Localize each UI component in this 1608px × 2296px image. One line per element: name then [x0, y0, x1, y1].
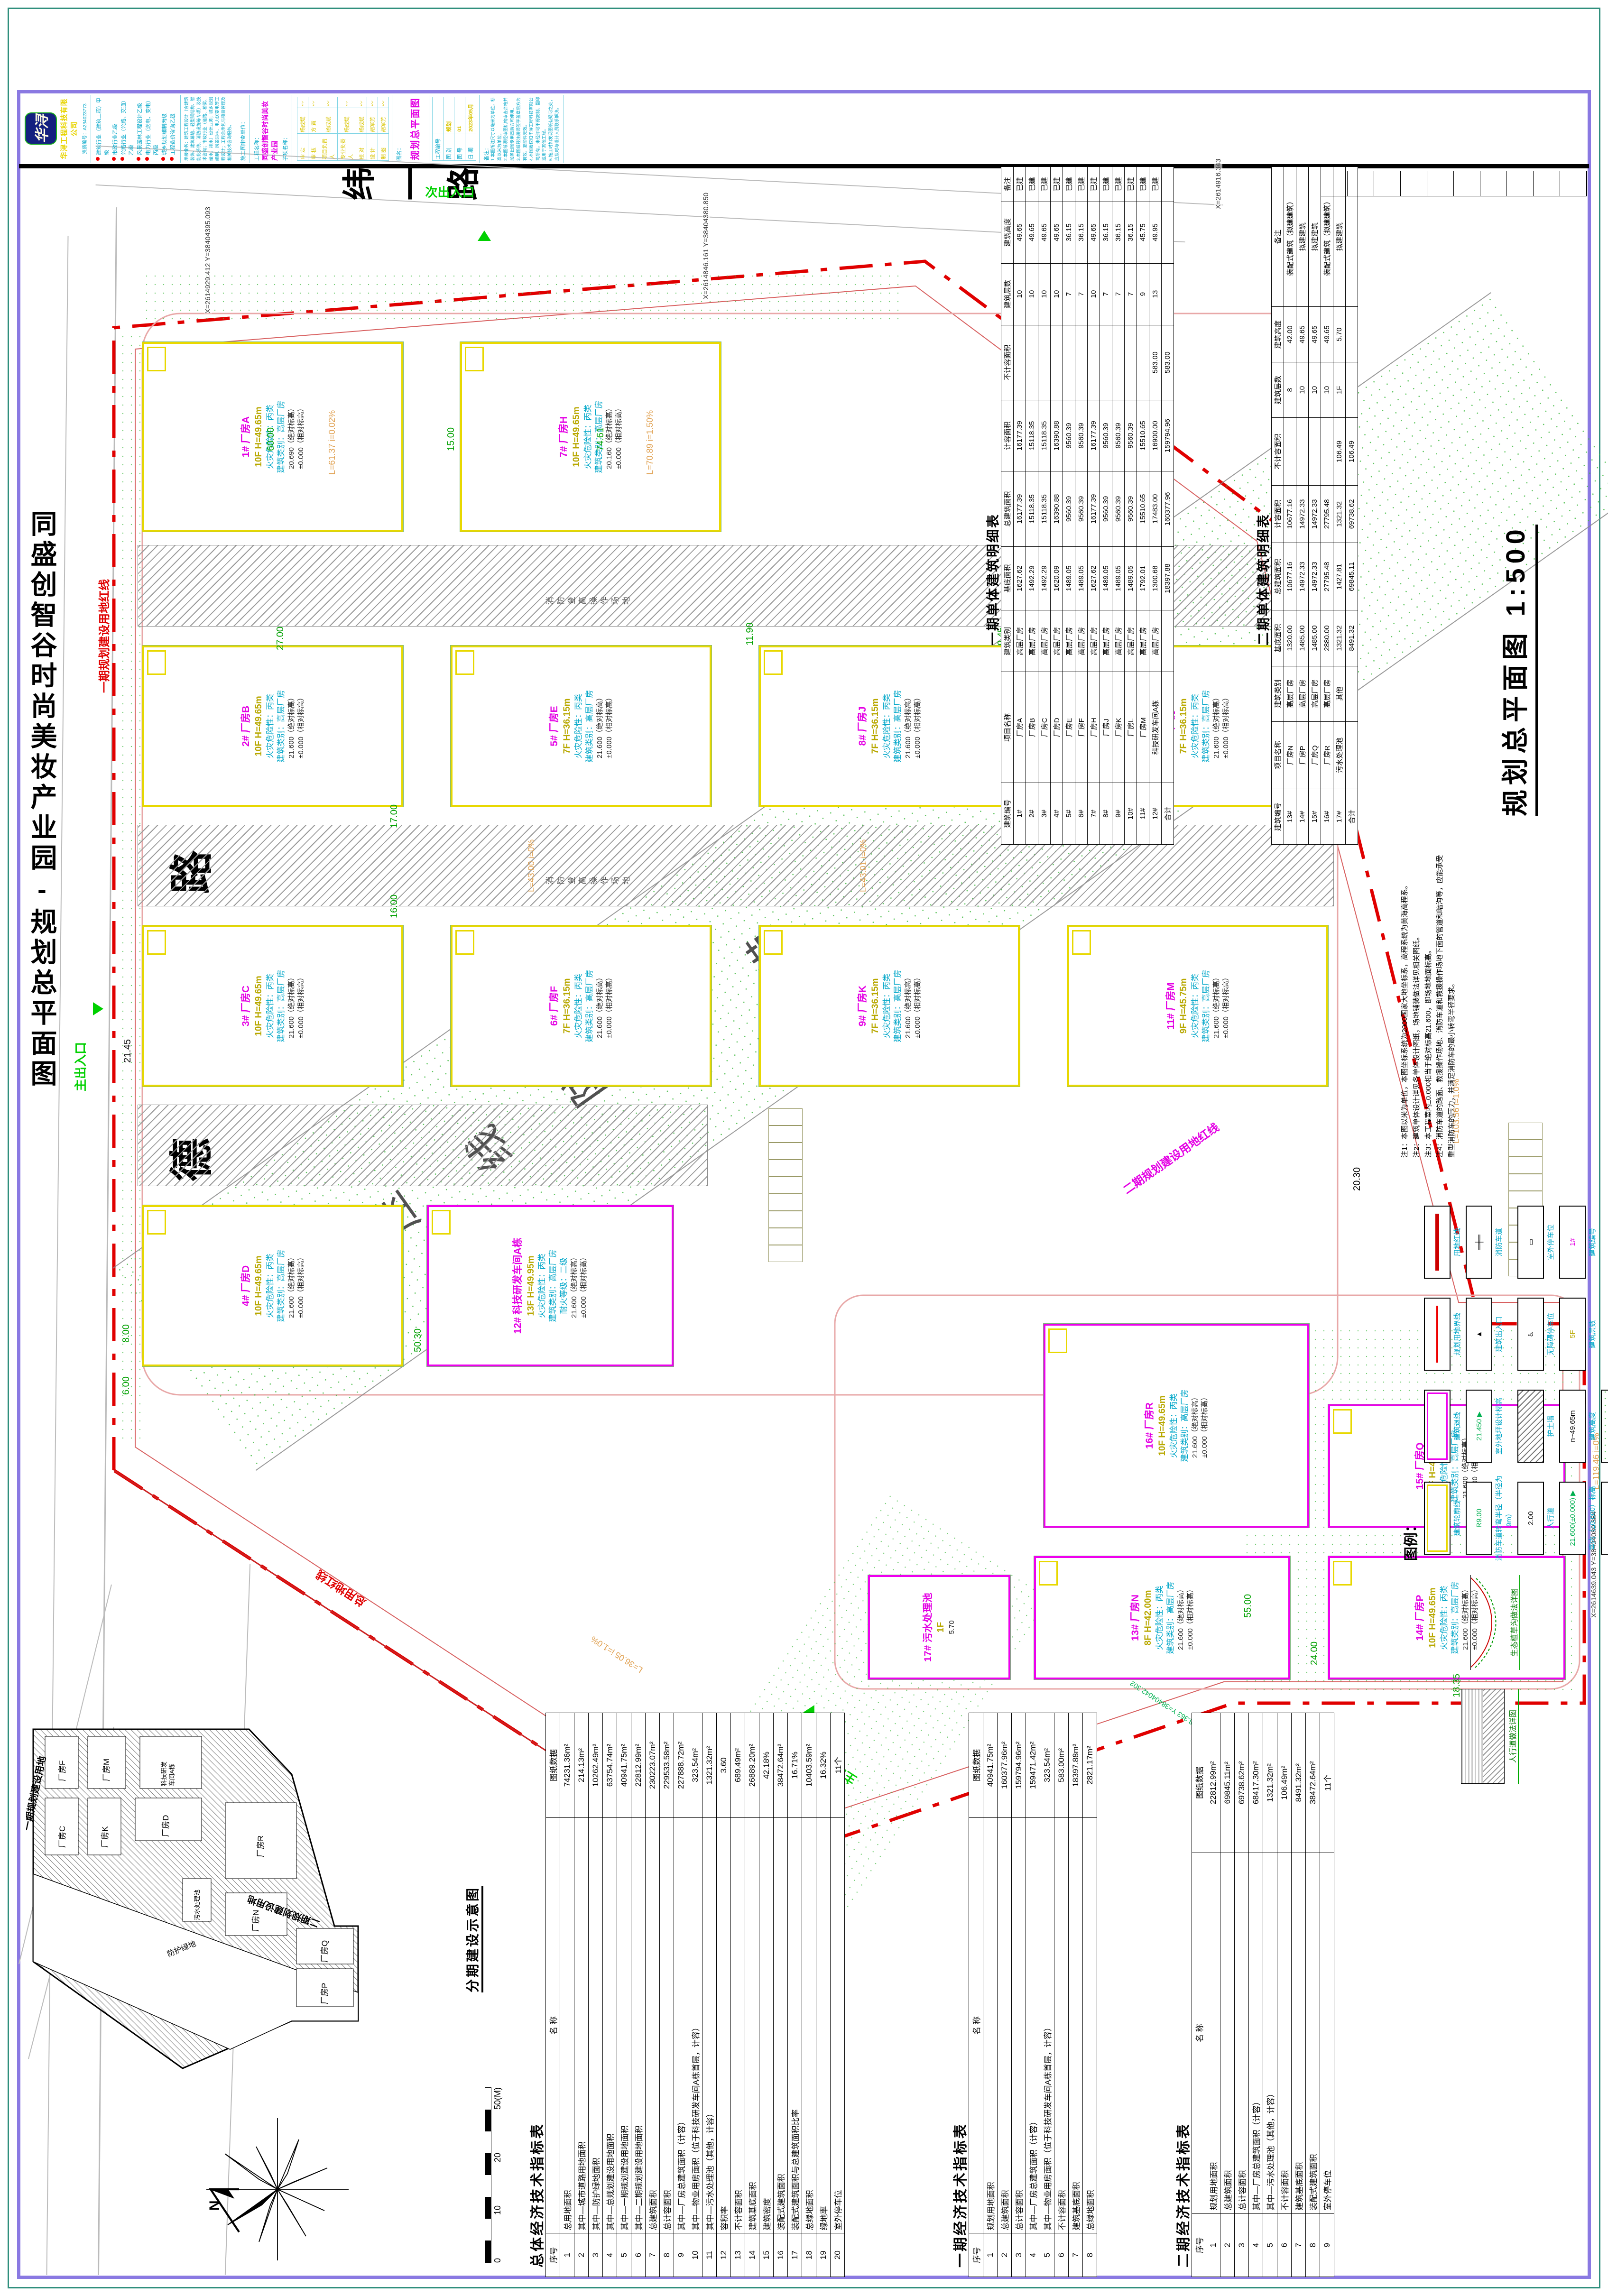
coordinate-label: X=2614929.412 Y=38404395.093	[204, 207, 212, 314]
svg-text:厂房F: 厂房F	[58, 1761, 67, 1781]
detail1-title: 一期单体建筑明细表	[983, 513, 1002, 645]
table-row: 7#厂房H高层厂房1627.6216177.3916177.391049.65已…	[1088, 167, 1100, 845]
dimension-label: 27.00	[275, 627, 286, 650]
legend-item: 绿化用地	[1601, 1383, 1608, 1469]
plan-note: 注3：本工程室内±0.000相当于绝对标高21.600，即场地地面标高。	[1423, 854, 1435, 1158]
table-row: 17装配式建筑面积与总建筑面积比率16.71%	[788, 1713, 802, 2277]
phase2-table-title: 二期经济技术指标表	[1172, 2122, 1192, 2268]
table-row: 4其中—厂房总建筑面积（计容）159471.42m²	[1026, 1713, 1040, 2277]
signature-scribble: 〰	[367, 97, 378, 108]
svg-text:厂房R: 厂房R	[256, 1835, 265, 1857]
roof-stair-notch	[764, 650, 783, 675]
building-label: 建筑类别：高层厂房	[276, 690, 287, 763]
building-7#: 7# 厂房H10F H=49.65m火灾危险性：丙类建筑类别：高层厂房20.16…	[460, 342, 721, 532]
entrance-arrow	[93, 1002, 103, 1015]
dimension-label: 50.30	[413, 1328, 424, 1352]
building-label: 火灾危险性：丙类	[1155, 1586, 1165, 1650]
overall-indicator-table: 序号名 称图纸数据1总用地面积74231.36m²2其中—城市道路用地面积214…	[545, 1713, 845, 2277]
signature-scribble: 〰	[297, 97, 308, 108]
parking-stalls	[768, 1108, 802, 1262]
scale-bar: 010 2050(M)	[485, 2087, 507, 2263]
building-label: ±0.000（相对标高）	[579, 1254, 589, 1318]
qualification-item: 风景园林工程设计乙级	[136, 97, 143, 161]
review-unit-line: 施工图审查单位：	[236, 95, 250, 163]
table-row: 2总建筑面积69845.11m²	[1220, 1713, 1235, 2277]
building-label: ±0.000（相对标高）	[605, 974, 614, 1038]
col-header: 序号	[1192, 2213, 1206, 2277]
phase1-table-title: 一期经济技术指标表	[949, 2122, 970, 2268]
bullet-dot-icon	[96, 157, 100, 161]
building-11#: 11# 厂房M9F H=45.75m火灾危险性：丙类建筑类别：高层厂房21.60…	[1067, 925, 1328, 1087]
col-header: 建筑类别	[1272, 666, 1284, 721]
plan-note: 注1：本图以米为单位，本图坐标系统为2000国家大地坐标系，高程系统为黄海高程系…	[1399, 854, 1411, 1158]
table-row: 5其中—污水处理池（其他，计容）1321.32m²	[1263, 1713, 1277, 2277]
building-label: 建筑类别：高层厂房	[1450, 1582, 1461, 1654]
qualification-item: 公路行业（公路、交通）乙级	[120, 97, 135, 161]
col-header: 总建筑面积	[1272, 543, 1284, 610]
plan-note: 注4：消防车道的路面、救援操作场地、消防车道和救援操作场地下面的管道和暗沟等，应…	[1434, 854, 1458, 1158]
company-reg-no: 资质编号：A234023773	[81, 97, 88, 161]
dimension-label: 16.00	[389, 894, 400, 918]
road-gradient-label: L=61.37 i=0.02%	[327, 410, 337, 475]
legend-item: 建筑轮廓线	[1424, 1475, 1462, 1561]
table-row: 14建筑基底面积26889.20m²	[745, 1713, 759, 2277]
table-row: 18总绿地面积10403.59m²	[802, 1713, 816, 2277]
col-header: 备注	[1001, 167, 1014, 202]
svg-text:车间A栋: 车间A栋	[168, 1763, 176, 1786]
building-label: 火灾危险性：丙类	[1169, 1393, 1180, 1458]
drawing-page: 同盛创智谷时尚美妆产业园-规划总平面图 德宝东路 纬一路	[0, 0, 1608, 2296]
dimension-label: 17.00	[389, 804, 400, 828]
legend-item: R9.00消防车道转弯半径（半径为9m）	[1466, 1475, 1514, 1561]
building-label: 13F H=49.95m	[525, 1255, 537, 1316]
north-label: N	[207, 2200, 222, 2211]
swale-detail: 生态植草沟做法详图	[1461, 1575, 1520, 1670]
signature-row: 制 图胡军芳〰	[378, 97, 389, 161]
legend-item: 建筑退线	[1424, 1383, 1462, 1469]
signature-scribble: 〰	[319, 97, 338, 108]
building-label: 火灾危险性：丙类	[1190, 694, 1201, 758]
col-header: 建筑高度	[1001, 202, 1014, 263]
dimension-label: 55.00	[1243, 1594, 1254, 1618]
legend-label: 室外地坪设计标高	[1494, 1398, 1504, 1455]
table-row: 3其中—防护绿地面积10262.49m²	[589, 1713, 603, 2277]
titleblock-note: 1.本图所注尺寸以毫米为单位，标高以米为单位。	[490, 97, 503, 161]
building-label: ±0.000（相对标高）	[605, 694, 614, 758]
building-label: 建筑类别：高层厂房	[1180, 1390, 1191, 1462]
dimension-label: 8.00	[121, 1324, 132, 1343]
svg-text:厂房D: 厂房D	[161, 1815, 170, 1837]
pavement-detail: 人行道做法详图	[1461, 1689, 1519, 1784]
signature-table: 审 定杨成斌〰审 核方 寅〰项目负责人杨成斌〰专业负责人杨成斌〰校 对杨成斌〰设…	[297, 97, 389, 161]
table-row: 9#厂房K高层厂房1489.059560.399560.39736.15已建	[1112, 167, 1125, 845]
signature-row: 专业负责人杨成斌〰	[338, 97, 356, 161]
legend-item: ▲建筑出入口	[1466, 1291, 1514, 1377]
legend-item: n~49.65m建筑高度	[1559, 1383, 1597, 1469]
signature-scribble: 〰	[356, 97, 367, 108]
building-label: ±0.000（相对标高）	[1221, 974, 1231, 1038]
entrance-label: 主出入口	[71, 1042, 89, 1091]
table-row: 3总计容面积69738.62m²	[1235, 1713, 1249, 2277]
building-label: 21.600（绝对标高）	[1191, 1393, 1200, 1458]
legend-item: 规划用地界线	[1424, 1291, 1462, 1377]
building-label: 火灾危险性：丙类	[573, 974, 584, 1038]
legend-item: ═╪═消防车道	[1466, 1199, 1514, 1285]
legend-item: ♿无障碍停车位	[1517, 1291, 1555, 1377]
building-16#: 16# 厂房R10F H=49.65m火灾危险性：丙类建筑类别：高层厂房21.6…	[1044, 1324, 1309, 1528]
legend-symbol-radius: R9.00	[1466, 1482, 1492, 1555]
signature-row: 设 计胡军芳〰	[367, 97, 378, 161]
phase2-indicator-table: 序号名 称图纸数据1规划用地面积22812.99m²2总建筑面积69845.11…	[1192, 1713, 1334, 2277]
dimension-label: 74.61	[595, 427, 606, 451]
table-row: 6不计容面积106.49m²	[1277, 1713, 1292, 2277]
table-row: 7建筑基底面积8491.32m²	[1292, 1713, 1306, 2277]
col-header: 基底面积	[1272, 610, 1284, 666]
qualification-item: 电力行业（送电、变电）丙级	[144, 97, 159, 161]
roof-stair-notch	[147, 930, 166, 955]
building-2#: 2# 厂房B10F H=49.65m火灾危险性：丙类建筑类别：高层厂房21.60…	[142, 645, 403, 807]
subproject-label: 子项名称：	[281, 97, 289, 161]
legend-label: 用地红线	[1452, 1228, 1462, 1256]
building-label: 11# 厂房M	[1164, 982, 1178, 1029]
building-label: 16# 厂房R	[1143, 1402, 1156, 1449]
col-header: 项目名称	[1272, 721, 1284, 789]
building-label: 火灾危险性：丙类	[265, 974, 276, 1038]
legend-item: 64.50 0.76%坡长与坡度	[1601, 1475, 1608, 1561]
table-row: 3总计容面积159794.96m²	[1012, 1713, 1026, 2277]
building-label: 建筑类别：高层厂房	[1165, 1582, 1176, 1654]
building-label: 建筑类别：高层厂房	[548, 1250, 559, 1322]
legend-symbol-bnum: 1#	[1559, 1206, 1586, 1279]
building-label: 建筑类别：高层厂房	[276, 1250, 287, 1322]
svg-text:厂房Q: 厂房Q	[320, 1940, 329, 1963]
building-label: 21.600（绝对标高）	[287, 974, 296, 1038]
roof-stair-notch	[147, 1210, 166, 1235]
building-label: 10F H=49.65m	[253, 976, 265, 1036]
margin-title: 同盛创智谷时尚美妆产业园-规划总平面图	[23, 510, 61, 1090]
qualification-item: 建筑行业（建筑工程）甲级	[95, 97, 110, 161]
building-12#: 12# 科技研发车间A栋13F H=49.95m火灾危险性：丙类建筑类别：高层厂…	[427, 1205, 674, 1366]
col-header: 图纸数据	[546, 1713, 560, 1818]
legend-item: 护土墙	[1517, 1383, 1555, 1469]
company-services: 承接业务：建筑工程设计（含建筑装饰、建筑幕墙、轻型钢结构、智能化系统、消防设施等…	[181, 95, 236, 163]
col-header: 序号	[969, 2233, 983, 2277]
bullet-dot-icon	[137, 157, 140, 161]
project-name: 同盛创智谷时尚美妆产业园	[260, 97, 279, 161]
roof-stair-notch	[1333, 1409, 1352, 1434]
legend-label: 人行道	[1545, 1508, 1555, 1529]
building-label: 4# 厂房D	[240, 1265, 253, 1306]
col-header: 名 称	[546, 1817, 560, 2233]
table-row: 11其中—污水处理池（其他，计容）1321.32m²	[702, 1713, 717, 2277]
table-row: 14#厂房P高层厂房1485.0014972.3314972.331049.65…	[1296, 167, 1309, 845]
svg-text:厂房N: 厂房N	[251, 1910, 260, 1932]
building-label: 火灾危险性：丙类	[265, 1254, 276, 1318]
building-label: 10F H=49.65m	[571, 406, 583, 467]
signature-row: 审 定杨成斌〰	[297, 97, 308, 161]
building-label: 13# 厂房N	[1129, 1595, 1142, 1641]
building-label: 火灾危险性：丙类	[1190, 974, 1201, 1038]
legend-symbol-yellow-rect	[1424, 1482, 1451, 1555]
table-row: 合计18397.88160377.96159794.96583.00	[1162, 167, 1174, 845]
building-label: 1F	[935, 1622, 947, 1632]
signature-row: 校 对杨成斌〰	[356, 97, 367, 161]
building-label: 建筑类别：高层厂房	[584, 970, 595, 1042]
building-label: 火灾危险性：丙类	[265, 694, 276, 758]
table-row: 10#厂房L高层厂房1489.059560.399560.39736.15已建	[1125, 167, 1137, 845]
col-header: 建筑层数	[1001, 263, 1014, 325]
building-label: 14# 厂房P	[1414, 1595, 1427, 1641]
building-label: 21.600（绝对标高）	[904, 974, 913, 1038]
signature-row: 项目负责人杨成斌〰	[319, 97, 338, 161]
table-row: 9其中—厂房总建筑面积（计容）227888.72m²	[674, 1713, 688, 2277]
signature-scribble: 〰	[308, 97, 319, 108]
col-header: 名 称	[969, 1817, 983, 2233]
legend-symbol-sidewalk: 2.00	[1517, 1482, 1544, 1555]
table-row: 1总用地面积74231.36m²	[560, 1713, 574, 2277]
col-header: 图纸数据	[1192, 1713, 1206, 1853]
legend-label: 建筑退线	[1452, 1412, 1462, 1440]
table-row: 5其中—物业用房面积（位于科技研发车间A栋首层，计容）323.54m²	[1040, 1713, 1054, 2277]
legend-item: ▭室外停车位	[1517, 1199, 1555, 1285]
building-17#: 17# 污水处理池1F5.70	[868, 1575, 1010, 1679]
building-label: ±0.000（相对标高）	[913, 974, 923, 1038]
legend-label: 建筑层数	[1587, 1320, 1597, 1348]
building-label: 8# 厂房J	[856, 707, 869, 746]
signature-row: 审 核方 寅〰	[308, 97, 319, 161]
col-header: 建筑层数	[1272, 362, 1284, 418]
legend-symbol-stall: ▭	[1517, 1206, 1544, 1279]
legend-symbol-elev-out: 21.450 ▶	[1466, 1390, 1492, 1463]
building-9#: 9# 厂房K7F H=36.15m火灾危险性：丙类建筑类别：高层厂房21.600…	[759, 925, 1020, 1087]
drawing-name-label: 图名：	[395, 97, 403, 161]
building-label: 7# 厂房H	[557, 416, 571, 457]
building-label: 建筑类别：高层厂房	[1201, 970, 1212, 1042]
table-row: 4其中—总规划建设用地面积63754.74m²	[603, 1713, 617, 2277]
svg-text:厂房P: 厂房P	[320, 1983, 329, 2004]
table-row: 20室外停车位11个	[831, 1713, 845, 2277]
table-row: 4#厂房D高层厂房1620.0916390.8816390.881049.65已…	[1051, 167, 1063, 845]
building-6#: 6# 厂房F7F H=36.15m火灾危险性：丙类建筑类别：高层厂房21.600…	[451, 925, 712, 1087]
building-5#: 5# 厂房E7F H=36.15m火灾危险性：丙类建筑类别：高层厂房21.600…	[451, 645, 712, 807]
legend-item: 5F建筑层数	[1559, 1291, 1597, 1377]
building-8#: 8# 厂房J7F H=36.15m火灾危险性：丙类建筑类别：高层厂房21.600…	[759, 645, 1020, 807]
legend-item: 用地红线	[1424, 1199, 1462, 1285]
coordinate-label: X=2614846.161 Y=38404380.850	[702, 193, 710, 299]
qualification-item: 城乡规划编制丙级	[160, 97, 168, 161]
building-label: 21.600（绝对标高）	[570, 1254, 579, 1318]
legend-label: 建筑轮廓线	[1452, 1501, 1462, 1536]
col-header: 项目名称	[1001, 672, 1014, 783]
swale-section	[1461, 1575, 1504, 1670]
table-row: 13#厂房N高层厂房1320.0010677.1610677.16842.00装…	[1284, 167, 1296, 845]
legend-symbol-red-thick	[1424, 1206, 1451, 1279]
roof-stair-notch	[1039, 1561, 1058, 1586]
plan-note: 注2：建筑单体设计详见各单体设计图纸，场地铺装做法详见相关图纸。	[1411, 854, 1423, 1158]
dimension-label: 24.00	[1309, 1641, 1320, 1665]
table-row: 5其中—一期规划建设用地面积40941.75m²	[617, 1713, 631, 2277]
entrance-label: 次出入口	[425, 183, 474, 200]
signature-scribble: 〰	[338, 97, 356, 108]
dimension-label: 60.00	[266, 427, 277, 451]
table-row: 1规划用地面积40941.75m²	[983, 1713, 998, 2277]
building-label: 7F H=36.15m	[869, 699, 882, 754]
building-label: 2# 厂房B	[240, 706, 253, 747]
table-row: 6不计容面积583.00m²	[1054, 1713, 1069, 2277]
building-label: 20.690（绝对标高）	[287, 405, 296, 469]
drawing-name: 规划总平面图	[407, 97, 421, 161]
table-row: 8#厂房J高层厂房1489.059560.399560.39736.15已建	[1100, 167, 1112, 845]
col-header: 总建筑面积	[1001, 471, 1014, 546]
dimension-label: 11.90	[745, 622, 756, 645]
company-qualifications: 建筑行业（建筑工程）甲级市政行业乙级公路行业（公路、交通）乙级风景园林工程设计乙…	[91, 95, 181, 163]
roof-stair-notch	[1072, 930, 1091, 955]
legend-symbol-wall	[1517, 1390, 1544, 1463]
building-label: 21.600（绝对标高）	[1212, 974, 1221, 1038]
col-header: 序号	[546, 2233, 560, 2277]
qualification-item: 市政行业乙级	[111, 97, 119, 161]
table-row: 19绿地率16.32%	[816, 1713, 831, 2277]
table-row: 合计8491.3269845.1169738.62106.49	[1346, 167, 1358, 845]
detail-caption: 生态植草沟做法详图	[1508, 1575, 1520, 1670]
table-row: 1规划用地面积22812.99m²	[1206, 1713, 1220, 2277]
building-label: 10F H=49.65m	[253, 406, 265, 467]
title-block: 华浔 华浔工程科技有限公司 资质编号：A234023773 建筑行业（建筑工程）…	[21, 95, 1587, 163]
building-label: 10F H=49.65m	[1427, 1587, 1439, 1648]
drawing-fields-table: 工程编号图 别规划图 号01日 期2023年05月	[432, 97, 476, 161]
building-label: 建筑类别：高层厂房	[893, 690, 904, 763]
building-label: 火灾危险性：丙类	[573, 694, 584, 758]
project-name-label: 工程名称：	[253, 97, 260, 161]
building-label: 5# 厂房E	[548, 706, 561, 746]
legend-title: 图例：	[1399, 1167, 1420, 1561]
legend-item: 21.450 ▶室外地坪设计标高	[1466, 1383, 1514, 1469]
titleblock-notes: 1.本图所注尺寸以毫米为单位，标高以米为单位。2.本图纸须经审图机构审查合格并加…	[490, 97, 561, 161]
col-header: 不计容面积	[1272, 418, 1284, 485]
svg-text:厂房K: 厂房K	[101, 1826, 110, 1848]
legend-label: 建筑高度	[1587, 1412, 1597, 1440]
legend-symbol-magenta-rect	[1424, 1390, 1451, 1463]
building-label: 9# 厂房K	[856, 986, 869, 1026]
building-label: 8F H=42.00m	[1142, 1590, 1155, 1646]
building-13#: 13# 厂房N8F H=42.00m火灾危险性：丙类建筑类别：高层厂房21.60…	[1034, 1556, 1290, 1679]
plan-title: 规划总平面图 1:500	[1494, 525, 1538, 816]
legend-symbol-floors: 5F	[1559, 1298, 1586, 1371]
col-header: 不计容面积	[1001, 325, 1014, 400]
legend-item: 1#建筑编号	[1559, 1199, 1597, 1285]
road-gradient-label: L=43.01 i=0%	[859, 839, 869, 892]
roof-stair-notch	[147, 347, 166, 371]
boundary-label: 一期规划建设用地红线	[95, 579, 111, 693]
roof-stair-notch	[455, 650, 474, 675]
qualification-item: 工程造价咨询乙级	[169, 97, 176, 161]
building-label: 7F H=36.15m	[561, 699, 573, 754]
roof-stair-notch	[764, 930, 783, 955]
building-label: 21.600（绝对标高）	[1212, 694, 1221, 758]
col-header: 计容面积	[1272, 485, 1284, 543]
legend-symbol-elev-in: 21.600(±0.000) ▶	[1559, 1482, 1586, 1555]
building-label: 火灾危险性：丙类	[1439, 1586, 1450, 1650]
building-label: 10F H=49.65m	[253, 696, 265, 756]
legend: 图例： 建筑轮廓线建筑退线规划用地界线用地红线R9.00消防车道转弯半径（半径为…	[1399, 1167, 1608, 1561]
table-row: 17#污水处理池其他1321.321427.811321.32106.491F5…	[1333, 167, 1346, 845]
building-label: 7F H=36.15m	[869, 978, 882, 1034]
legend-label: 无障碍停车位	[1545, 1313, 1555, 1355]
building-label: 21.600（绝对标高）	[595, 974, 605, 1038]
legend-label: 消防车道	[1494, 1228, 1504, 1256]
legend-symbol-entry: ▲	[1466, 1298, 1492, 1371]
col-header: 建筑编号	[1272, 789, 1284, 844]
company-logo: 华浔	[25, 113, 57, 145]
table-row: 13不计容面积689.49m²	[731, 1713, 745, 2277]
col-header: 名 称	[1192, 1853, 1206, 2213]
building-label: 建筑类别：高层厂房	[893, 970, 904, 1042]
building-14#: 14# 厂房P10F H=49.65m火灾危险性：丙类建筑类别：高层厂房21.6…	[1328, 1556, 1565, 1679]
svg-text:厂房M: 厂房M	[102, 1759, 111, 1781]
bullet-dot-icon	[145, 157, 149, 161]
phase1-indicator-table: 序号名 称图纸数据1规划用地面积40941.75m²2总建筑面积160377.9…	[969, 1713, 1097, 2277]
building-label: 10F H=49.65m	[1156, 1395, 1169, 1456]
building-label: 9F H=45.75m	[1178, 978, 1190, 1034]
building-label: ±0.000（相对标高）	[296, 1254, 306, 1318]
bullet-dot-icon	[170, 157, 174, 161]
table-row: 16#厂房R高层厂房2880.0027795.4827795.481049.65…	[1321, 167, 1333, 845]
building-label: 21.600（绝对标高）	[287, 1254, 296, 1318]
table-row: 4其中—厂房总建筑面积（计容）68417.30m²	[1249, 1713, 1263, 2277]
landscape-sheet: 德宝东路 纬一路 高压线防护带 绿化4327.43m² 消防登高操作场地	[0, 0, 1608, 2296]
legend-label: 室外停车位	[1545, 1225, 1555, 1260]
building-3#: 3# 厂房C10F H=49.65m火灾危险性：丙类建筑类别：高层厂房21.60…	[142, 925, 403, 1087]
col-header: 基底面积	[1001, 546, 1014, 610]
table-row: 2其中—城市道路用地面积214.13m²	[574, 1713, 589, 2277]
building-label: 10F H=49.65m	[253, 1255, 265, 1316]
building-label: 17# 污水处理池	[922, 1593, 935, 1662]
table-row: 2总建筑面积160377.96m²	[998, 1713, 1012, 2277]
table-row: 16装配式建筑面积38472.64m²	[774, 1713, 788, 2277]
phasing-key-plan: 厂房C 厂房F 厂房K 厂房M 厂房D 科技研发车间A栋 污水处理池 厂房N 厂…	[26, 1727, 458, 2078]
building-label: 建筑类别：高层厂房	[276, 970, 287, 1042]
table-row: 8总计容面积229533.58m²	[660, 1713, 674, 2277]
building-label: 21.600（绝对标高）	[595, 694, 605, 758]
legend-label: 建筑出入口	[1494, 1317, 1504, 1352]
road-gradient-label: L=43.00 i=0%	[527, 839, 536, 892]
dimension-label: 6.00	[121, 1376, 132, 1395]
building-label: ±0.000（相对标高）	[296, 694, 306, 758]
table-row: 8装配式建筑面积38472.64m²	[1306, 1713, 1320, 2277]
building-label: ±0.000（相对标高）	[296, 974, 306, 1038]
drawing-field-row: 工程编号	[433, 97, 444, 161]
building-label: 火灾危险性：丙类	[537, 1254, 548, 1318]
legend-symbol-green-spk	[1601, 1390, 1608, 1463]
building-label: 5.70	[947, 1620, 957, 1634]
legend-symbol-height: n~49.65m	[1559, 1390, 1586, 1463]
fire-strip-label: 消防登高操作场地	[545, 596, 633, 608]
table-row: 7总建筑面积230223.07m²	[646, 1713, 660, 2277]
table-row: 15建筑密度42.18%	[759, 1713, 774, 2277]
signature-scribble: 〰	[378, 97, 389, 108]
titleblock-notes-label: 备注：	[482, 97, 490, 161]
table-row: 3#厂房C高层厂房1492.2915118.3515118.351049.65已…	[1038, 167, 1051, 845]
building-label: 7F H=36.15m	[561, 978, 573, 1034]
col-header: 备注	[1272, 167, 1284, 307]
fire-strip-label: 消防登高操作场地	[545, 876, 633, 887]
table-row: 11#厂房M高层厂房1792.0115510.6515510.65945.75已…	[1137, 167, 1149, 845]
building-label: 3# 厂房C	[240, 986, 253, 1026]
drawing-field-row: 图 号01	[454, 97, 465, 161]
table-row: 2#厂房B高层厂房1492.2915118.3515118.351049.65已…	[1026, 167, 1038, 845]
legend-symbol-fire-lane: ═╪═	[1466, 1206, 1492, 1279]
drawing-field-row: 日 期2023年05月	[465, 97, 476, 161]
